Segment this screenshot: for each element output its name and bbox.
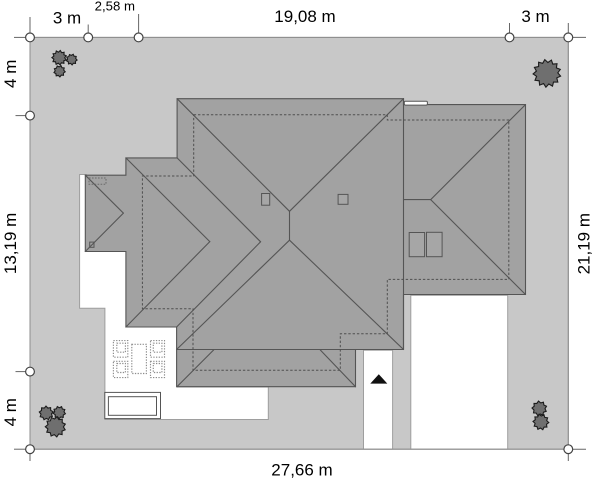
svg-text:2,58 m: 2,58 m <box>95 0 135 14</box>
svg-text:3 m: 3 m <box>521 7 549 26</box>
svg-text:4 m: 4 m <box>1 60 20 88</box>
svg-text:13,19 m: 13,19 m <box>1 213 20 274</box>
svg-text:4 m: 4 m <box>1 398 20 426</box>
svg-text:19,08 m: 19,08 m <box>274 7 335 26</box>
svg-text:27,66 m: 27,66 m <box>271 460 332 479</box>
svg-text:3 m: 3 m <box>53 9 81 28</box>
svg-text:21,19 m: 21,19 m <box>575 213 594 274</box>
